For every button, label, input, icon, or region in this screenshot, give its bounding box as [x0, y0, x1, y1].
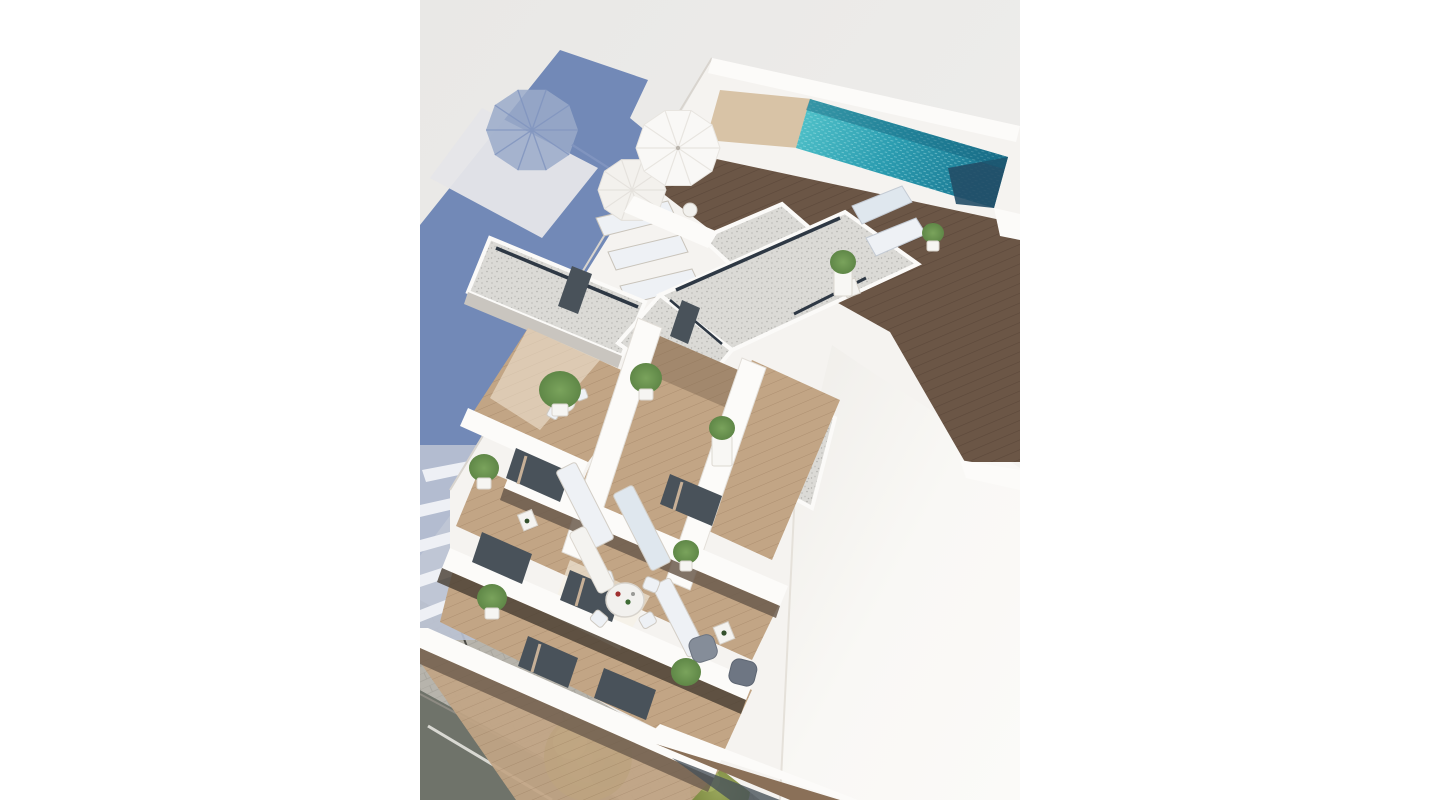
page-background: [0, 0, 1440, 800]
side-table: [683, 203, 697, 217]
table-item: [525, 519, 530, 524]
plant-on-stand: [709, 416, 735, 466]
pool-surround-tan-deck: [706, 90, 812, 148]
table-item-red: [615, 591, 620, 596]
architectural-render: [420, 0, 1020, 800]
plant-on-stand: [830, 250, 856, 296]
table-item: [631, 592, 635, 596]
table-item-green: [625, 599, 630, 604]
render-canvas: [420, 0, 1020, 800]
sun-umbrella: [636, 110, 720, 185]
potted-plant: [671, 658, 701, 686]
table-item: [721, 630, 726, 635]
